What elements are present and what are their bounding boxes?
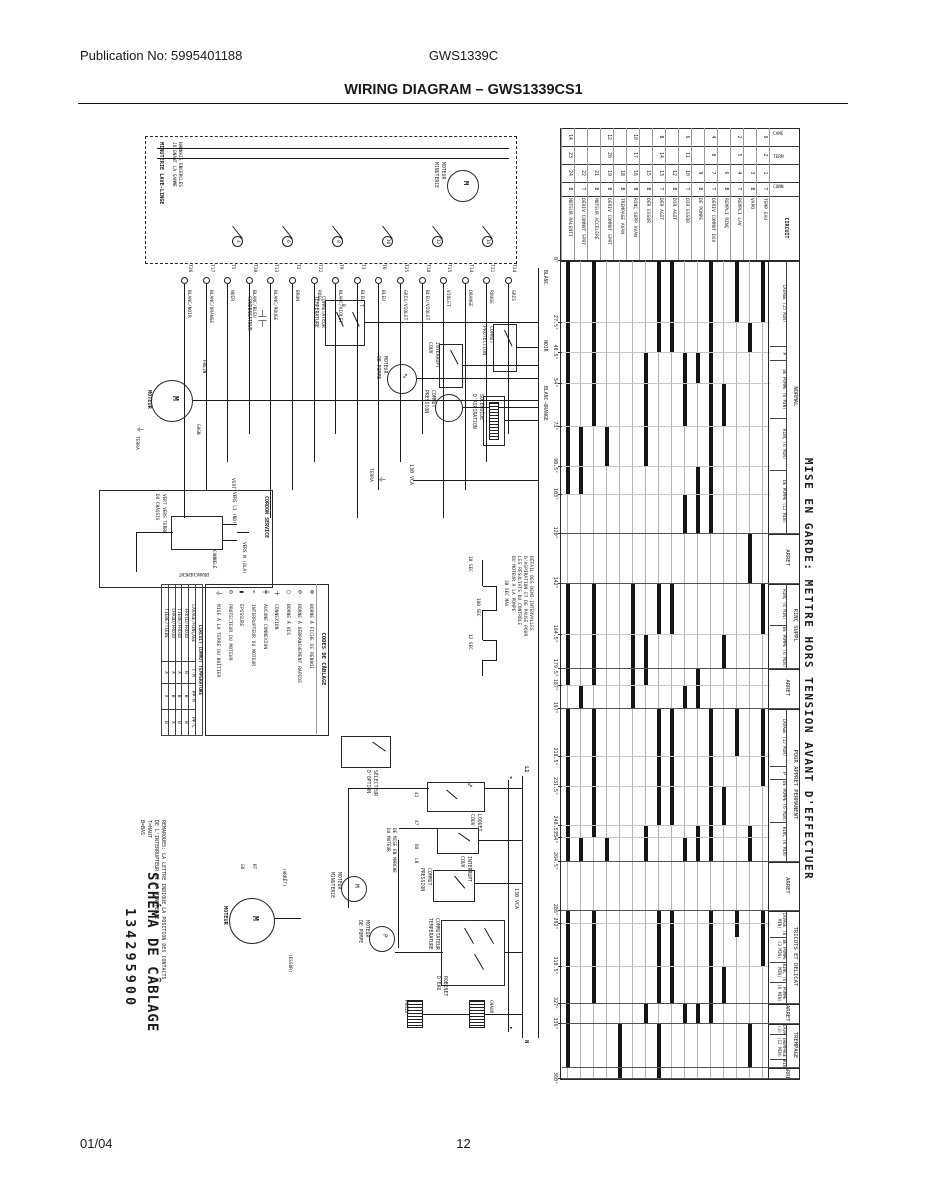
diagram-label: CHAUD — [487, 1000, 492, 1013]
diagram-label: TEMPÉRATURE — [427, 918, 432, 950]
cell-came: 6 — [684, 128, 689, 146]
tick-label: 120° — [552, 521, 558, 545]
plug-body — [171, 516, 223, 550]
temp-table-cell: X — [175, 662, 182, 683]
terminal-label: T6 — [381, 264, 386, 270]
temp-table-cell: X — [161, 662, 168, 683]
terminal-icon — [289, 277, 296, 284]
diagram-label: COMMUT — [430, 390, 435, 407]
legend-item-label: INTERRUPTEUR DU MOTEUR — [250, 604, 255, 666]
wire — [482, 560, 483, 586]
top-rail — [538, 268, 539, 1038]
cell-term: 14 — [658, 146, 663, 164]
tick-label: 218.5° — [552, 744, 558, 768]
cell-came: 12 — [606, 128, 611, 146]
table-row-line — [717, 128, 718, 260]
wire — [413, 480, 539, 481]
tick-label: 336° — [552, 1011, 558, 1035]
cell-term: 23 — [567, 146, 572, 164]
diagram-label: MINUTERIE — [433, 162, 438, 188]
diagram-label: BRANCHEMENT — [179, 571, 209, 576]
wire — [505, 952, 523, 953]
cell-circuit-name: DÉR AGIT — [658, 198, 663, 258]
diagram-label: INTERRUPT — [434, 342, 439, 368]
tick-label: 27.5° — [552, 310, 558, 334]
diagram-label: P — [380, 934, 387, 938]
cell-term2: 13 — [658, 164, 663, 182]
diagram-label: DE MISE EN MARCHE — [390, 828, 395, 873]
wire — [417, 378, 539, 379]
cam-number: 12 — [432, 236, 443, 247]
diagram-label: D'ASPIRATION — [471, 394, 476, 429]
cell-term2: 9 — [697, 164, 702, 182]
cell-pos: T — [736, 182, 741, 196]
terminal-icon — [375, 277, 382, 284]
manual-page: Publication No: 5995401188 GWS1339C WIRI… — [0, 0, 927, 1200]
terminal-wire — [249, 284, 250, 434]
cell-pos: T — [762, 182, 767, 196]
wire — [349, 788, 429, 789]
cell-term: 20 — [606, 146, 611, 164]
legend-item-label: BORNE À VIS — [285, 604, 290, 635]
cam-number: 10 — [382, 236, 393, 247]
diagram-label: COUV — [427, 342, 432, 354]
diagram-part-number: 134295900 — [122, 908, 137, 1008]
diagram-label: GO — [238, 864, 243, 869]
wire — [395, 952, 443, 953]
temp-table-header: PP-M — [189, 683, 196, 709]
terminal-label: T5 — [230, 264, 235, 270]
diagram-label: D'OPTION — [365, 770, 370, 793]
cell-term2: 10 — [684, 164, 689, 182]
cell-pos: B — [671, 182, 676, 196]
terminal-wire — [443, 284, 444, 518]
wire-color-label: GRIS — [510, 290, 515, 301]
tick-label: 292° — [552, 911, 558, 935]
corner-circuit: CIRCUIT — [783, 196, 789, 260]
diagram-title: SCHÉMA DE CÂBLAGE — [144, 872, 159, 1032]
legend-item-label: MISE À LA TERRE DU BOÎTIER — [215, 604, 220, 677]
tick-label: 264.5° — [552, 849, 558, 873]
cell-came: 10 — [632, 128, 637, 146]
cell-pos: T — [580, 182, 585, 196]
wire — [365, 322, 539, 323]
legend-title: CODES DE CÂBLAGE — [320, 584, 326, 734]
terminal-icon — [505, 277, 512, 284]
diagram-label: 10 SEC — [466, 556, 471, 572]
temp-table-header: LAVAGE/RINÇAGE — [189, 585, 196, 662]
wire-color-label: BLANC/NOIR — [186, 290, 191, 318]
cell-term2: 7 — [710, 164, 715, 182]
wire — [223, 524, 237, 525]
diagram-label: (ARRÊT) — [280, 868, 285, 887]
wire — [237, 532, 249, 533]
legend-symbol-icon: ⊘ — [296, 590, 303, 594]
wire — [483, 640, 497, 641]
table-row-line — [691, 128, 692, 260]
diagram-label: MOTEUR — [440, 162, 445, 179]
cell-circuit-name: DE POMPE — [697, 198, 702, 258]
table-row-line — [704, 128, 705, 260]
n-label: N — [523, 1040, 529, 1043]
diagram-label: COUV — [469, 814, 474, 826]
pressure-switch-symbol — [435, 394, 463, 422]
diagram-label: ∿ — [467, 780, 473, 788]
main-motor-symbol — [229, 898, 275, 944]
diagram-label: CORDON SERVICE — [263, 496, 269, 538]
diagram-label: COMMUT — [488, 326, 493, 343]
hot-valve-coil — [469, 1000, 485, 1028]
timer-motor-symbol — [447, 170, 479, 202]
cam-number: 14 — [482, 236, 493, 247]
corner-conn: CONN — [773, 186, 784, 191]
temp-table-header: PP-C — [189, 709, 196, 735]
diagram-label: BU — [412, 844, 417, 849]
wire — [479, 840, 523, 841]
cell-came: 8 — [658, 128, 663, 146]
temp-table-header: T-M — [189, 662, 196, 683]
tick-label: 103° — [552, 482, 558, 506]
diagram-label: TERRA — [134, 436, 139, 450]
cell-pos: B — [645, 182, 650, 196]
timer-motor-symbol — [341, 876, 367, 902]
cell-term2: 18 — [619, 164, 624, 182]
terminal-wire — [400, 284, 401, 462]
wire-color-label: BLEU — [380, 290, 385, 301]
legend-symbol-icon: ⏚ — [215, 590, 222, 597]
terminal-label: T18 — [425, 264, 430, 272]
wire — [482, 610, 483, 640]
temp-table-cell: B — [161, 709, 168, 735]
wire-color-label: ROSE — [316, 290, 321, 301]
cell-circuit-name: TREMPAGE AVAN — [619, 198, 624, 258]
terminal-icon — [332, 277, 339, 284]
ground-icon: ⏚ — [135, 426, 143, 433]
diagram-label: M — [250, 916, 259, 921]
table-row-line — [678, 128, 679, 260]
terminal-label: T17 — [209, 264, 214, 272]
terminal-wire — [357, 284, 358, 518]
cam-number: 6 — [282, 236, 293, 247]
wire — [508, 780, 509, 1032]
cell-circuit-name: DÉRIV COMMUT SPRT — [606, 198, 611, 258]
cell-circuit-name: REMPLI RINÇ — [723, 198, 728, 258]
diagram-label: SÉLECTEUR — [372, 770, 377, 796]
diagram-label: MOTEUR — [145, 390, 151, 409]
diagram-label: D'ASPIRATION ET DE PAUSE POUR — [522, 556, 527, 636]
table-row-line — [613, 128, 614, 260]
cell-circuit-name: DÉRIV COMMUT SPRT — [580, 198, 585, 258]
terminal-wire — [335, 284, 336, 434]
cell-pos: B — [593, 182, 598, 196]
diagram-label: D'EAU — [435, 976, 440, 990]
diagram-label: VERT — [230, 478, 235, 489]
diagram-label: DÉTAIL DES DEMI-INTERVALLES — [528, 556, 533, 631]
diagram-label: MOTEUR — [336, 872, 341, 889]
temp-table-cell: TIÈDE/TIÈDE — [161, 585, 168, 662]
terminal-icon — [224, 277, 231, 284]
cell-pos: B — [723, 182, 728, 196]
chart-plot-border — [560, 260, 800, 1080]
table-row-line — [587, 128, 588, 260]
coil-symbol — [489, 402, 499, 440]
temp-table-cell: X — [168, 662, 175, 683]
wire — [157, 158, 509, 159]
wire-color-label: NOIR — [542, 340, 547, 352]
terminal-wire — [270, 284, 271, 518]
tick-label: 187° — [552, 673, 558, 697]
diagram-label: VERS L1 (NO) — [230, 492, 235, 524]
terminal-icon — [203, 277, 210, 284]
corner-term: TERM — [773, 156, 784, 161]
temp-table-title: CIRCUIT COMMUT TEMPÉRATURE — [196, 585, 203, 736]
wire — [423, 1014, 471, 1015]
cell-circuit-name: DIR ESSOR — [684, 198, 689, 258]
wire-color-label: GRIS/VIOLET — [402, 290, 407, 320]
diagram-label: PRESSION — [423, 390, 428, 413]
diagram-label: ∿ — [400, 373, 408, 379]
table-row-line — [626, 128, 627, 260]
cell-circuit-name: VAPO — [749, 198, 754, 258]
l1-rail — [522, 776, 523, 1038]
wire — [398, 840, 399, 948]
temp-table-cell: CHAUD/FROID — [168, 585, 175, 662]
cell-term2: 1 — [762, 164, 767, 182]
cell-term2: 24 — [567, 164, 572, 182]
wire-color-label: ROUGE — [488, 290, 493, 304]
diagram-label: 30 SEC MAX — [502, 580, 507, 606]
cell-term: 17 — [632, 146, 637, 164]
table-row-line — [561, 128, 562, 260]
diagram-label: 130 VCA — [408, 464, 414, 485]
tick-label: 54° — [552, 371, 558, 395]
legend-symbol-icon: ○ — [285, 590, 292, 594]
cell-term2: 12 — [671, 164, 676, 182]
terminal-label: T3 — [360, 264, 365, 270]
diagram-label: LES RÉSULTATS DU CONTRÔLE — [516, 556, 521, 625]
diagram-label: DE POMPE — [357, 920, 362, 943]
terminal-label: T9 — [338, 264, 343, 270]
wire — [496, 586, 497, 610]
option-selector-box — [341, 736, 391, 768]
table-row-line — [639, 128, 640, 260]
diagram-label: FREIN — [200, 360, 205, 373]
diagram-label: COUV — [459, 856, 464, 868]
table-column-line — [562, 196, 800, 197]
diagram-label: MOTEUR — [221, 906, 227, 925]
table-row-line — [743, 128, 744, 260]
wire — [223, 540, 237, 541]
cell-circuit-name: MOTEUR ACCÉLÉRÉ — [593, 198, 598, 258]
tick-label: 164.5° — [552, 622, 558, 646]
wire — [485, 788, 523, 789]
terminal-label: T20 — [252, 264, 257, 272]
cell-circuit-name: REMPLI LAV — [736, 198, 741, 258]
cell-circuit-name: MOTEUR RALENTI — [567, 198, 572, 258]
terminal-wire — [314, 284, 315, 462]
diagram-label: JOIGNANT LA GAMME — [170, 142, 175, 187]
terminal-wire — [184, 284, 185, 518]
cell-came: 14 — [567, 128, 572, 146]
diagram-label: 41 — [412, 792, 417, 797]
tick-label: 73° — [552, 414, 558, 438]
temp-table-cell: B — [168, 683, 175, 709]
diagram-label: TERRA — [368, 468, 373, 482]
cell-came: 4 — [710, 128, 715, 146]
cell-pos: B — [619, 182, 624, 196]
wire-color-label: NOIR — [229, 290, 234, 301]
terminal-icon — [181, 277, 188, 284]
terminal-label: T21 — [489, 264, 494, 272]
legend-title-rule — [316, 584, 317, 734]
wire-color-label: BLEU/VIOLET — [424, 290, 429, 320]
tick-label: 197° — [552, 696, 558, 720]
cell-pos: B — [749, 182, 754, 196]
cell-term: 11 — [684, 146, 689, 164]
cell-term2: 22 — [580, 164, 585, 182]
terminal-icon — [397, 277, 404, 284]
temp-table-cell: B — [175, 709, 182, 735]
table-row-line — [574, 128, 575, 260]
diagram-label: VERT VERS TERRE — [160, 494, 165, 534]
diagram-stage: MISE EN GARDE: METTRE HORS TENSION AVANT… — [75, 128, 815, 1080]
terminal-label: T24 — [511, 264, 516, 272]
legend-symbol-icon: ＋ — [273, 590, 280, 597]
wire-color-label: BRUN — [294, 290, 299, 301]
remarks-line: REMARQUES: LA LETTRE INDIQUE LA POSITION… — [160, 820, 166, 980]
wire-color-label: BLANC-ORANGE — [542, 386, 547, 421]
diagram-label: MOTEUR — [364, 920, 369, 937]
table-header-line — [769, 128, 770, 260]
legend-item-label: BORNE À DÉBRANCHEMENT RAPIDE — [296, 604, 301, 683]
remarks-line: T=HAUT — [146, 820, 152, 838]
tick-label: 310.5° — [552, 954, 558, 978]
wire — [137, 532, 173, 533]
main-motor-symbol — [151, 380, 193, 422]
cell-term2: 15 — [645, 164, 650, 182]
wire-color-label: VIOLET — [445, 290, 450, 307]
cell-circuit-name: TEMP EAU — [762, 198, 767, 258]
diagram-label: DU MOTEUR À LA POMPE — [510, 556, 515, 611]
temp-table-cell: B — [182, 683, 189, 709]
temp-table-cell: B — [182, 662, 189, 683]
wire-color-label: ORANGE — [467, 290, 472, 307]
tick-label: 360° — [552, 1066, 558, 1090]
cell-circuit-name: RINÇ SUPP AVAN — [632, 198, 637, 258]
cam-number: 8 — [332, 236, 343, 247]
cam-number: 4 — [232, 236, 243, 247]
diagram-label: RT — [250, 864, 255, 869]
table-row-line — [730, 128, 731, 260]
diagram-label: GAGN — [194, 424, 199, 435]
legend-symbol-icon: ▮ — [238, 590, 245, 594]
wire-color-label: BLEU — [359, 290, 364, 301]
cell-circuit-name: DIR AGIT — [671, 198, 676, 258]
cell-pos: B — [632, 182, 637, 196]
wire — [496, 640, 497, 660]
terminal-icon — [311, 277, 318, 284]
terminal-label: T25 — [403, 264, 408, 272]
cell-term2: 21 — [593, 164, 598, 182]
terminal-label: T14 — [468, 264, 473, 272]
cell-pos: T — [684, 182, 689, 196]
cell-circuit-name: DÉRIV COMMUT DSV — [710, 198, 715, 258]
diagram-label: VERS N (BLA) — [240, 542, 245, 574]
temp-switch-table: CIRCUIT COMMUT TEMPÉRATURELAVAGE/RINÇAGE… — [161, 584, 203, 736]
diagram-label: 12 SEC — [466, 634, 471, 650]
cell-term2: 6 — [723, 164, 728, 182]
cell-term2: 19 — [606, 164, 611, 182]
diagram-label: CANNELÉ — [210, 550, 215, 569]
terminal-label: T26 — [187, 264, 192, 272]
tick-label: 254° — [552, 825, 558, 849]
legend-symbol-icon: ⊙ — [227, 590, 234, 594]
remarks-line: B=BAS — [139, 820, 145, 835]
footer-page-number: 12 — [0, 1136, 927, 1151]
terminal-icon — [246, 277, 253, 284]
legend-symbol-icon: ╪ — [261, 590, 268, 594]
wire — [485, 1014, 523, 1015]
diagram-label: ROBINET — [442, 976, 447, 996]
diagram-label: HARNAIS ENCERCLÉS — [176, 142, 181, 187]
diagram-label: COMMUT — [426, 868, 431, 885]
cold-valve-coil — [407, 1000, 423, 1028]
temp-switch-box — [441, 920, 505, 986]
pump-motor-symbol — [369, 926, 395, 952]
terminal-wire — [422, 284, 423, 434]
temp-table-cell: TIÈDE/FROID — [175, 585, 182, 662]
table-row-line — [665, 128, 666, 260]
tick-label: 0° — [552, 248, 558, 272]
diagram-label: ◀ — [509, 776, 513, 778]
cell-came: 0 — [762, 128, 767, 146]
wire-color-label: BLANC/ROUGE — [272, 290, 277, 320]
cell-pos: B — [606, 182, 611, 196]
diagram-label: SOLÉNOÏDE — [478, 394, 483, 420]
legend-symbol-icon: ⌁ — [250, 590, 257, 594]
diagram-label: FROID — [402, 1000, 407, 1013]
diagram-label: 47 — [412, 820, 417, 825]
terminal-label: T22 — [317, 264, 322, 272]
terminal-wire — [378, 284, 379, 490]
temp-table-cell: B — [175, 683, 182, 709]
temp-table-cell: B — [182, 709, 189, 735]
wire-color-label: BLANC/VIOLET — [337, 290, 342, 323]
diagram-label: COMMUTATEUR — [434, 918, 439, 950]
terminal-icon — [419, 277, 426, 284]
terminal-icon — [440, 277, 447, 284]
pump-motor-symbol — [387, 364, 417, 394]
legend-symbol-icon: ⊗ — [308, 590, 315, 594]
terminal-label: T2 — [295, 264, 300, 270]
diagram-label: M — [461, 181, 469, 185]
tick-label: 231.5° — [552, 774, 558, 798]
diagram-label: M — [352, 884, 359, 888]
diagram-label: MOTEUR — [382, 356, 387, 373]
cell-term: 2 — [762, 146, 767, 164]
terminal-wire — [227, 284, 228, 462]
terminal-label: T13 — [273, 264, 278, 272]
wire — [483, 586, 497, 587]
cell-pos: T — [710, 182, 715, 196]
page-title: WIRING DIAGRAM – GWS1339CS1 — [0, 82, 927, 98]
diagram-label: DU MOTEUR — [384, 828, 389, 852]
cell-pos: T — [658, 182, 663, 196]
terminal-icon — [462, 277, 469, 284]
cell-term2: 16 — [632, 164, 637, 182]
wire — [505, 420, 539, 421]
diagram-label: LB — [412, 858, 417, 863]
